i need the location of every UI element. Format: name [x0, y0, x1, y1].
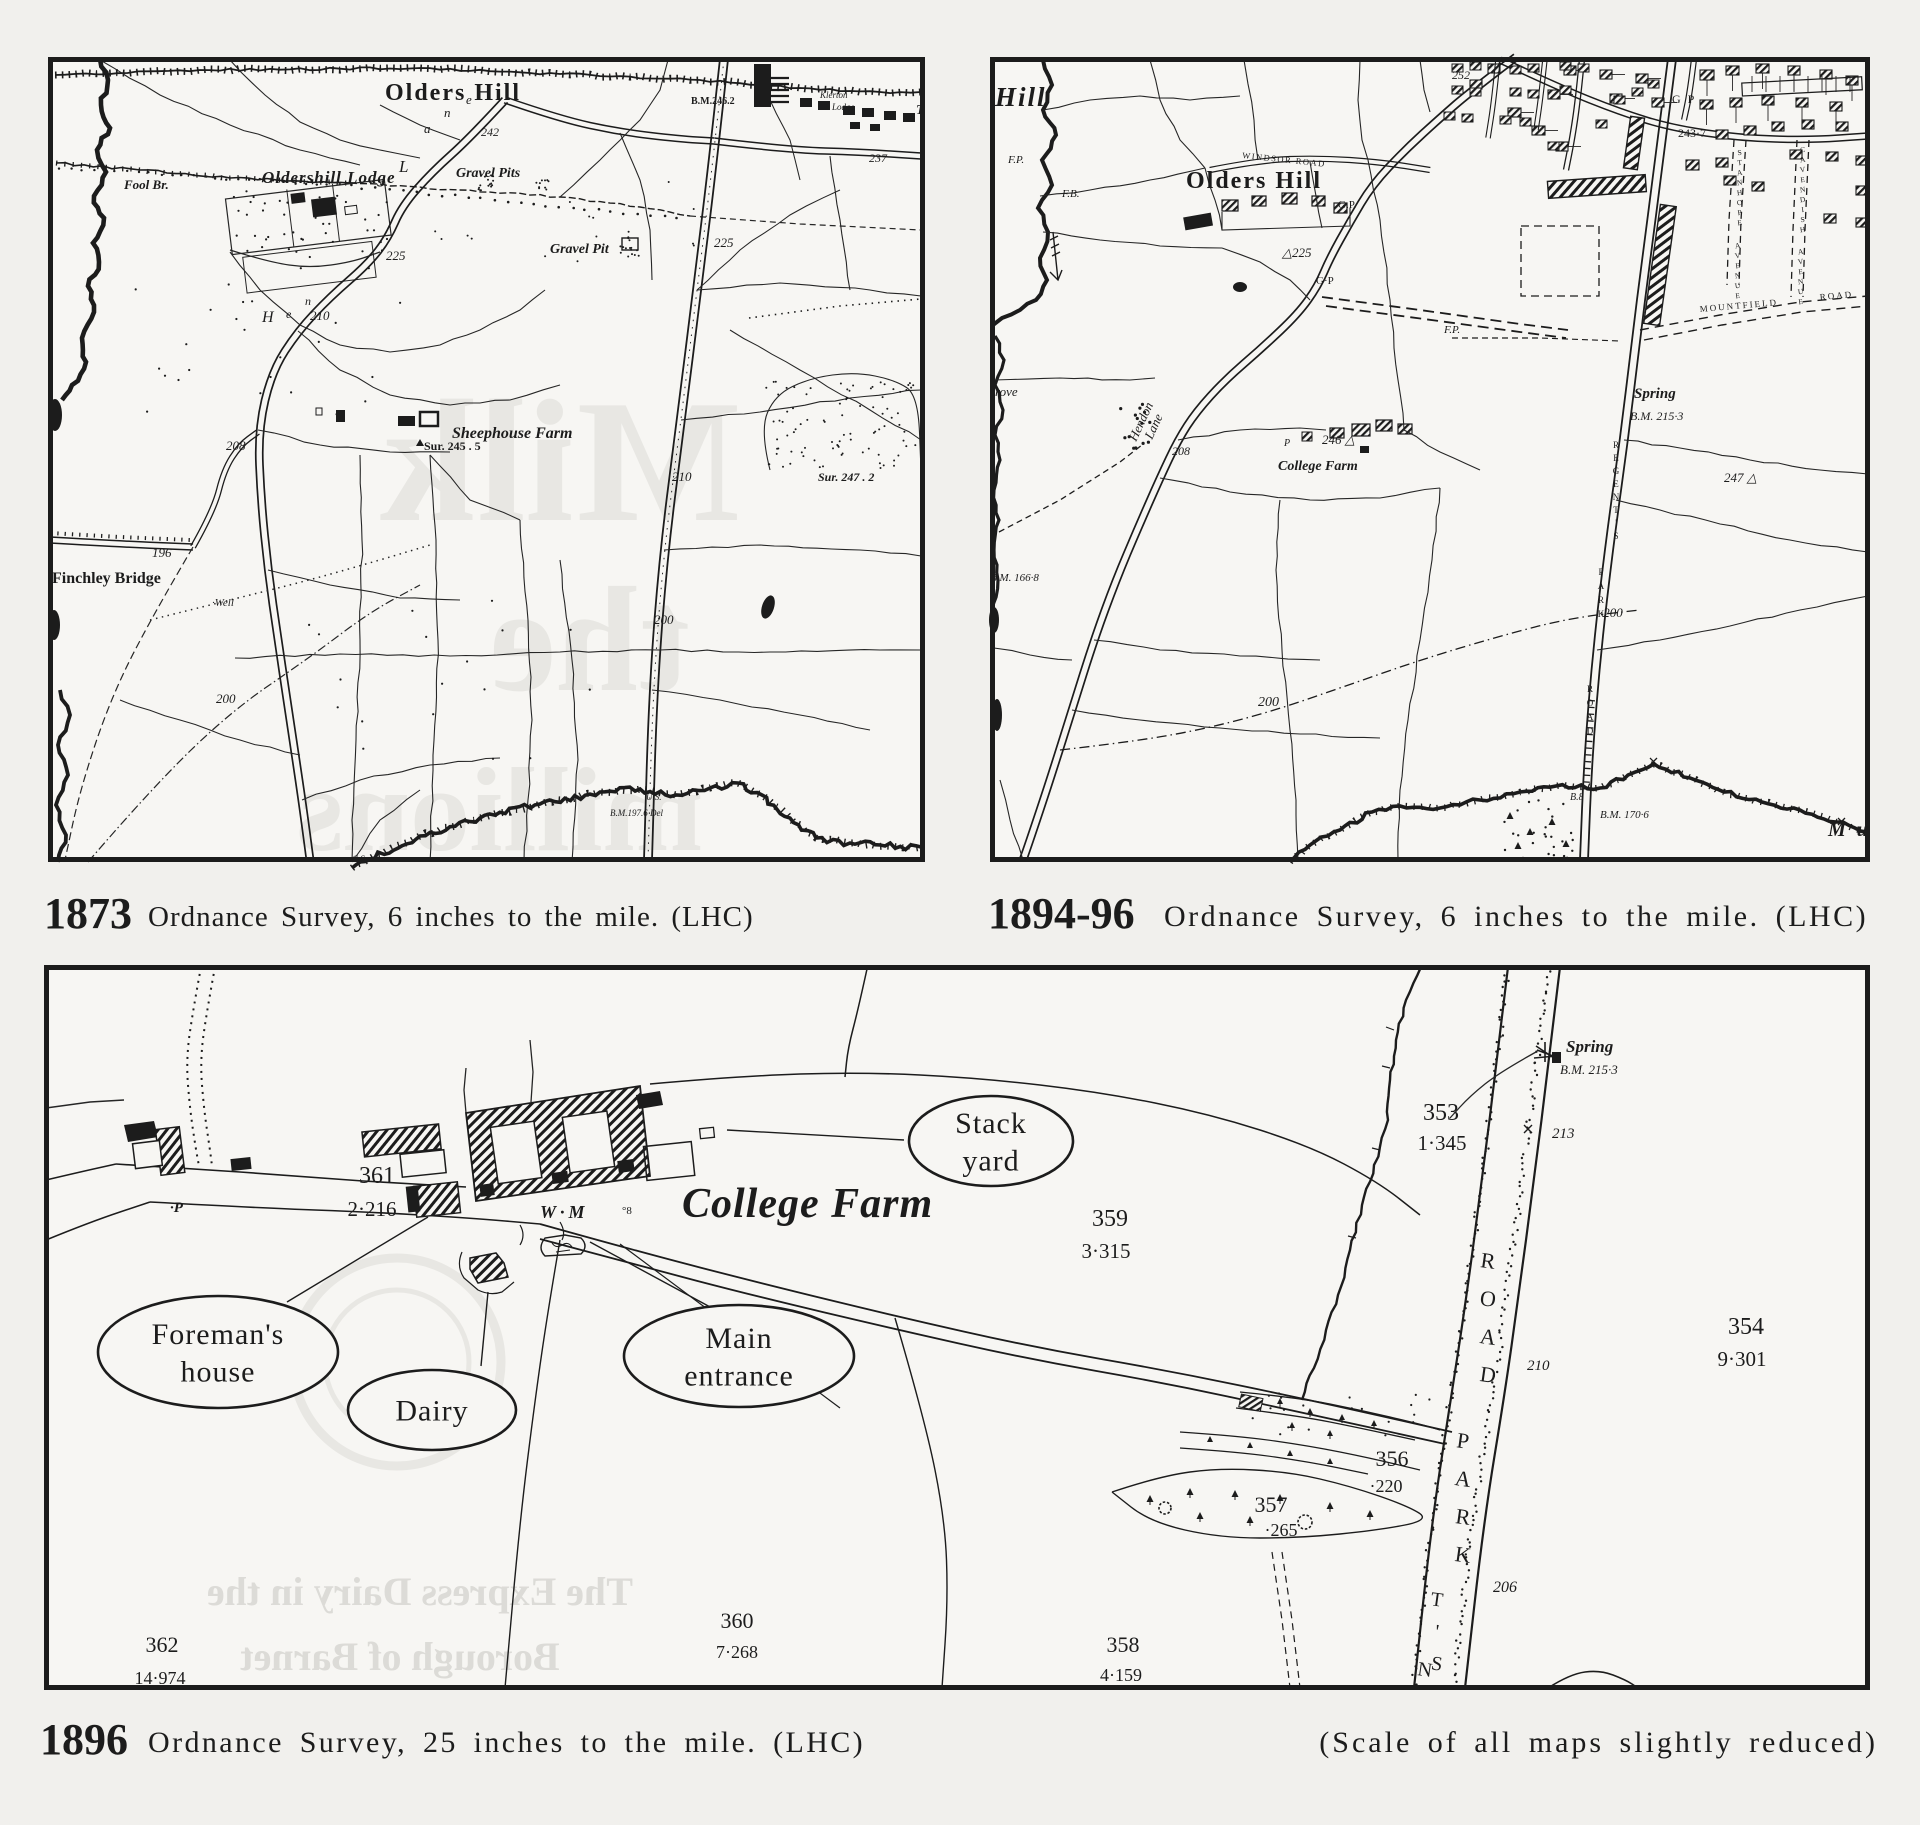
svg-text:Spring: Spring	[1634, 386, 1676, 402]
svg-text:208: 208	[1172, 444, 1190, 458]
svg-text:B.M. 170·6: B.M. 170·6	[1600, 809, 1649, 821]
svg-text:225: 225	[714, 235, 734, 250]
svg-text:F.B.: F.B.	[1061, 188, 1080, 200]
svg-text:a: a	[424, 121, 431, 136]
svg-text:360: 360	[721, 1608, 754, 1633]
svg-text:the: the	[490, 557, 690, 723]
svg-text:·P: ·P	[170, 1200, 184, 1216]
svg-text:D: D	[1587, 726, 1594, 736]
svg-text:9·301: 9·301	[1718, 1347, 1767, 1371]
svg-text:R: R	[1587, 684, 1593, 694]
svg-text:·Well: ·Well	[212, 597, 234, 609]
svg-text:Stack: Stack	[955, 1107, 1027, 1140]
svg-text:353: 353	[1423, 1100, 1459, 1126]
svg-text:College Farm: College Farm	[1278, 459, 1358, 474]
svg-text:·220: ·220	[1370, 1476, 1403, 1496]
svg-text:U.S.: U.S.	[646, 792, 662, 802]
svg-text:Olders Hill: Olders Hill	[1186, 168, 1322, 194]
svg-text:e: e	[286, 307, 292, 321]
svg-text:rove: rove	[995, 384, 1018, 399]
svg-text:225: 225	[386, 248, 406, 263]
svg-text:A: A	[1587, 712, 1594, 722]
svg-text:358: 358	[1107, 1632, 1140, 1657]
svg-text:4·159: 4·159	[1100, 1665, 1142, 1685]
svg-text:Gravel Pit: Gravel Pit	[550, 242, 610, 257]
svg-text:B.M.246.2: B.M.246.2	[691, 96, 735, 107]
svg-text:210: 210	[310, 308, 330, 323]
svg-text:N: N	[1416, 1658, 1433, 1682]
svg-text:213: 213	[1552, 1126, 1575, 1142]
svg-text:°8: °8	[622, 1205, 632, 1217]
svg-text:G P: G P	[1672, 92, 1696, 106]
svg-text:243·7: 243·7	[1678, 126, 1706, 140]
svg-text:△225: △225	[1281, 245, 1312, 260]
svg-text:Borough of Barnet: Borough of Barnet	[240, 1634, 560, 1679]
svg-text:G·P: G·P	[1316, 275, 1334, 287]
svg-text:200: 200	[1258, 695, 1279, 710]
svg-text:·265: ·265	[1265, 1520, 1298, 1540]
svg-text:210: 210	[672, 469, 692, 484]
svg-text:B.M. 215·3: B.M. 215·3	[1560, 1062, 1618, 1077]
svg-text:210: 210	[1527, 1358, 1550, 1374]
svg-text:R: R	[1613, 440, 1619, 450]
svg-text:N: N	[1613, 492, 1620, 502]
svg-text:Ordnance Survey, 6 inches to: Ordnance Survey, 6 inches to the mile. (…	[148, 901, 754, 933]
svg-text:M u: M u	[1827, 819, 1871, 841]
svg-text:yard: yard	[962, 1144, 1019, 1177]
svg-text:7·268: 7·268	[716, 1642, 758, 1662]
svg-text:Sur. 245 . 5: Sur. 245 . 5	[424, 439, 481, 453]
svg-text:200: 200	[654, 612, 674, 627]
svg-text:e: e	[466, 92, 472, 107]
svg-text:Hill: Hill	[994, 82, 1047, 112]
svg-text:Olders Hill: Olders Hill	[385, 80, 521, 106]
svg-text:1873: 1873	[44, 889, 132, 938]
svg-text:T: T	[1613, 505, 1619, 515]
svg-text:Ordnance Survey, 25 inches to: Ordnance Survey, 25 inches to the mile. …	[148, 1726, 865, 1759]
svg-text:361: 361	[359, 1163, 395, 1189]
svg-text:B.M. 166·8: B.M. 166·8	[990, 572, 1039, 584]
svg-text:Dairy: Dairy	[395, 1395, 468, 1428]
svg-text:237: 237	[869, 151, 888, 165]
svg-text:n: n	[305, 294, 311, 308]
svg-text:Oldershill Lodge: Oldershill Lodge	[262, 168, 396, 187]
svg-text:1896: 1896	[40, 1715, 128, 1764]
svg-text:house: house	[181, 1355, 256, 1388]
svg-text:206: 206	[1493, 1579, 1517, 1596]
svg-text:Spring: Spring	[1566, 1037, 1614, 1056]
svg-text:B.8: B.8	[1570, 792, 1584, 803]
svg-text:2·216: 2·216	[348, 1197, 397, 1221]
svg-text:G.P.: G.P.	[1338, 199, 1357, 211]
svg-text:L: L	[398, 157, 408, 176]
svg-text:G: G	[1613, 466, 1620, 476]
svg-text:·200: ·200	[1600, 605, 1623, 620]
svg-text:n: n	[444, 105, 451, 120]
svg-text:252: 252	[1452, 68, 1470, 82]
svg-text:S: S	[1613, 531, 1618, 541]
svg-text:E: E	[1613, 479, 1619, 489]
svg-text:(Scale of all maps slightly re: (Scale of all maps slightly reduced)	[1319, 1726, 1878, 1759]
svg-text:Sur. 247 . 2: Sur. 247 . 2	[818, 470, 874, 484]
svg-text:Milk: Milk	[379, 364, 739, 558]
svg-text:B.M. 215·3: B.M. 215·3	[1630, 409, 1683, 423]
svg-text:entrance: entrance	[684, 1359, 794, 1392]
svg-text:Foreman's: Foreman's	[152, 1318, 285, 1351]
svg-text:354: 354	[1728, 1314, 1764, 1340]
svg-text:1894-96: 1894-96	[988, 889, 1135, 938]
svg-text:247 △: 247 △	[1724, 470, 1757, 485]
svg-text:196: 196	[152, 545, 172, 560]
svg-text:200: 200	[216, 691, 236, 706]
svg-text:356: 356	[1376, 1446, 1409, 1471]
svg-text:E: E	[1613, 453, 1619, 463]
svg-text:1·345: 1·345	[1418, 1131, 1467, 1155]
svg-text:P: P	[1283, 438, 1290, 449]
svg-text:F.P.: F.P.	[1007, 154, 1024, 166]
svg-text:H: H	[261, 309, 275, 326]
svg-text:P: P	[1598, 567, 1603, 577]
svg-text:Ordnance Survey, 6 inches to: Ordnance Survey, 6 inches to the mile. (…	[1164, 900, 1868, 933]
svg-text:Fool Br.: Fool Br.	[123, 177, 169, 192]
svg-text:W·M: W·M	[540, 1202, 589, 1222]
svg-text:F.P.: F.P.	[1443, 324, 1460, 336]
svg-text:O: O	[1587, 698, 1594, 708]
svg-text:3·315: 3·315	[1082, 1239, 1131, 1263]
svg-text:Klerton: Klerton	[819, 90, 848, 100]
svg-text:246 △: 246 △	[1322, 432, 1355, 447]
svg-text:Main: Main	[705, 1322, 772, 1355]
svg-text:359: 359	[1092, 1206, 1128, 1232]
svg-text:Lodge: Lodge	[831, 102, 855, 112]
svg-text:A: A	[1598, 581, 1605, 591]
svg-text:Finchley Bridge: Finchley Bridge	[52, 570, 161, 587]
svg-text:College Farm: College Farm	[682, 1181, 933, 1227]
svg-text:Gravel Pits: Gravel Pits	[456, 166, 521, 181]
svg-text:R: R	[1598, 595, 1604, 605]
svg-text:The Express Dairy in the: The Express Dairy in the	[207, 1569, 633, 1614]
svg-text:362: 362	[146, 1632, 179, 1657]
svg-text:208: 208	[226, 438, 246, 453]
svg-text:B.M.197.6 Del: B.M.197.6 Del	[610, 808, 663, 818]
svg-text:357: 357	[1255, 1492, 1288, 1517]
svg-text:242: 242	[481, 125, 499, 139]
